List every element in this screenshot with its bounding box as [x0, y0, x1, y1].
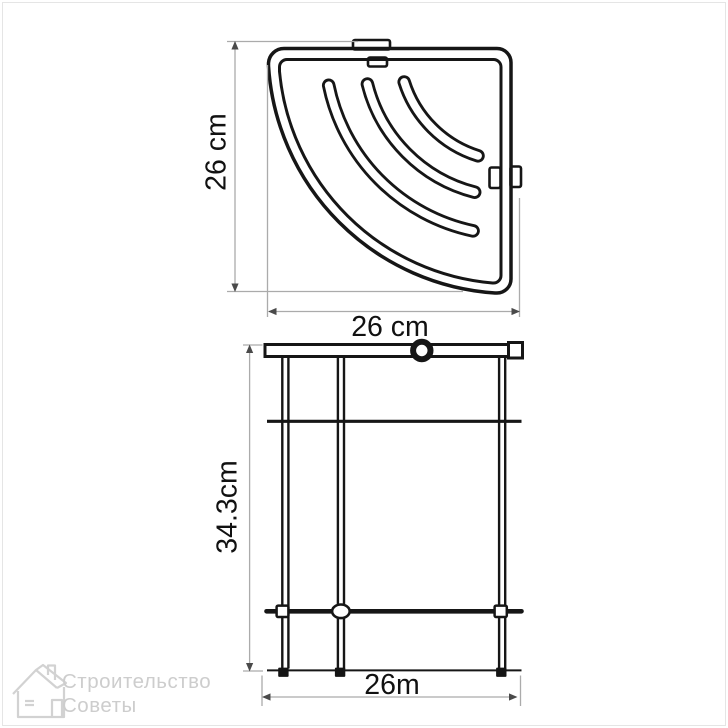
watermark: Строительство Советы [13, 665, 211, 717]
rail-connector-center [332, 605, 350, 619]
watermark-line1: Строительство [62, 670, 211, 693]
wire-posts [282, 357, 505, 669]
foot-center [335, 668, 345, 677]
drain-slot-inner [404, 82, 478, 156]
drain-slots [329, 82, 478, 231]
shelf-inner-rim [280, 60, 502, 284]
front-view-width-label: 26m [364, 669, 419, 701]
front-view-dimensions: 34.3cm 26m [212, 345, 521, 707]
top-view [269, 40, 522, 293]
end-cap-square [509, 343, 523, 359]
product-dimension-diagram: 26 cm 26 cm [0, 0, 728, 728]
front-view-height-label: 34.3cm [212, 460, 244, 553]
rail-connector-left [277, 606, 289, 617]
foot-left [278, 668, 288, 677]
page-border [3, 3, 726, 726]
technical-drawing: 26 cm 26 cm [0, 0, 728, 728]
watermark-line2: Советы [62, 694, 137, 717]
top-view-height-label: 26 cm [201, 113, 233, 191]
top-shelf-bar [265, 345, 509, 357]
drain-slot-outer-hollow [329, 85, 473, 231]
front-view [265, 342, 523, 677]
rail-connector-right [495, 606, 507, 617]
hook-ring [413, 342, 430, 359]
top-view-width-label: 26 cm [351, 311, 429, 343]
house-icon [13, 665, 66, 717]
drain-slot-outer [329, 85, 473, 231]
foot-right [496, 668, 506, 677]
dimension-arrows [246, 345, 518, 701]
wall-mount-tab-right-inner [490, 168, 501, 189]
shelf-outer-rim [269, 48, 512, 293]
